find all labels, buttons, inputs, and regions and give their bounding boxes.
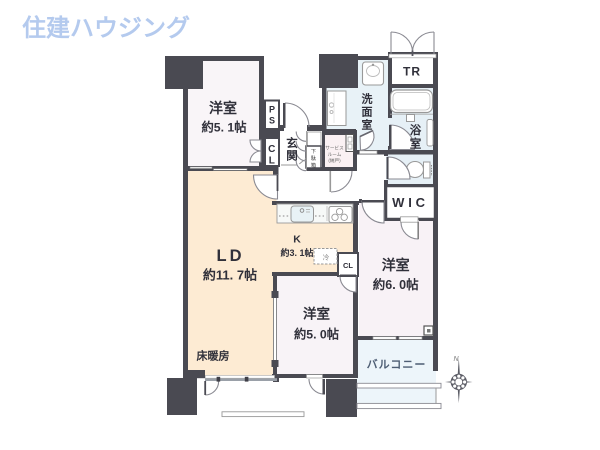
svg-text:住建ハウジング: 住建ハウジング — [22, 14, 190, 42]
svg-text:室: 室 — [410, 137, 422, 151]
svg-text:洋室: 洋室 — [382, 257, 410, 273]
svg-text:洋室: 洋室 — [303, 306, 330, 322]
svg-text:冷: 冷 — [323, 253, 330, 262]
svg-text:P: P — [269, 105, 275, 115]
svg-text:玄: 玄 — [286, 136, 298, 150]
svg-text:約11. 7帖: 約11. 7帖 — [203, 268, 257, 283]
svg-text:洋室: 洋室 — [209, 100, 237, 116]
svg-text:(納戸): (納戸) — [328, 157, 341, 164]
svg-text:箱: 箱 — [311, 161, 316, 169]
svg-text:サービス: サービス — [325, 145, 344, 152]
svg-text:約6. 0帖: 約6. 0帖 — [373, 277, 419, 292]
svg-text:約3. 1帖: 約3. 1帖 — [280, 247, 313, 258]
svg-text:浴: 浴 — [410, 123, 422, 137]
svg-text:ルーム: ルーム — [328, 152, 342, 157]
svg-text:下: 下 — [311, 148, 316, 155]
svg-text:S: S — [269, 116, 275, 126]
svg-text:洗: 洗 — [362, 92, 373, 106]
svg-text:面: 面 — [362, 106, 373, 119]
svg-text:駄: 駄 — [311, 154, 317, 162]
svg-text:C: C — [268, 144, 275, 155]
svg-text:室: 室 — [362, 118, 373, 132]
svg-text:CL: CL — [343, 261, 353, 270]
svg-text:LD: LD — [217, 247, 245, 265]
svg-text:WIC: WIC — [392, 195, 429, 210]
svg-text:床暖房: 床暖房 — [197, 349, 230, 363]
svg-text:バルコニー: バルコニー — [367, 358, 427, 371]
svg-text:約5. 1帖: 約5. 1帖 — [201, 120, 246, 135]
svg-text:約5. 0帖: 約5. 0帖 — [294, 327, 339, 342]
svg-text:K: K — [293, 234, 301, 246]
svg-text:L: L — [269, 156, 275, 167]
svg-text:TR: TR — [403, 65, 421, 79]
svg-text:関: 関 — [286, 150, 298, 163]
